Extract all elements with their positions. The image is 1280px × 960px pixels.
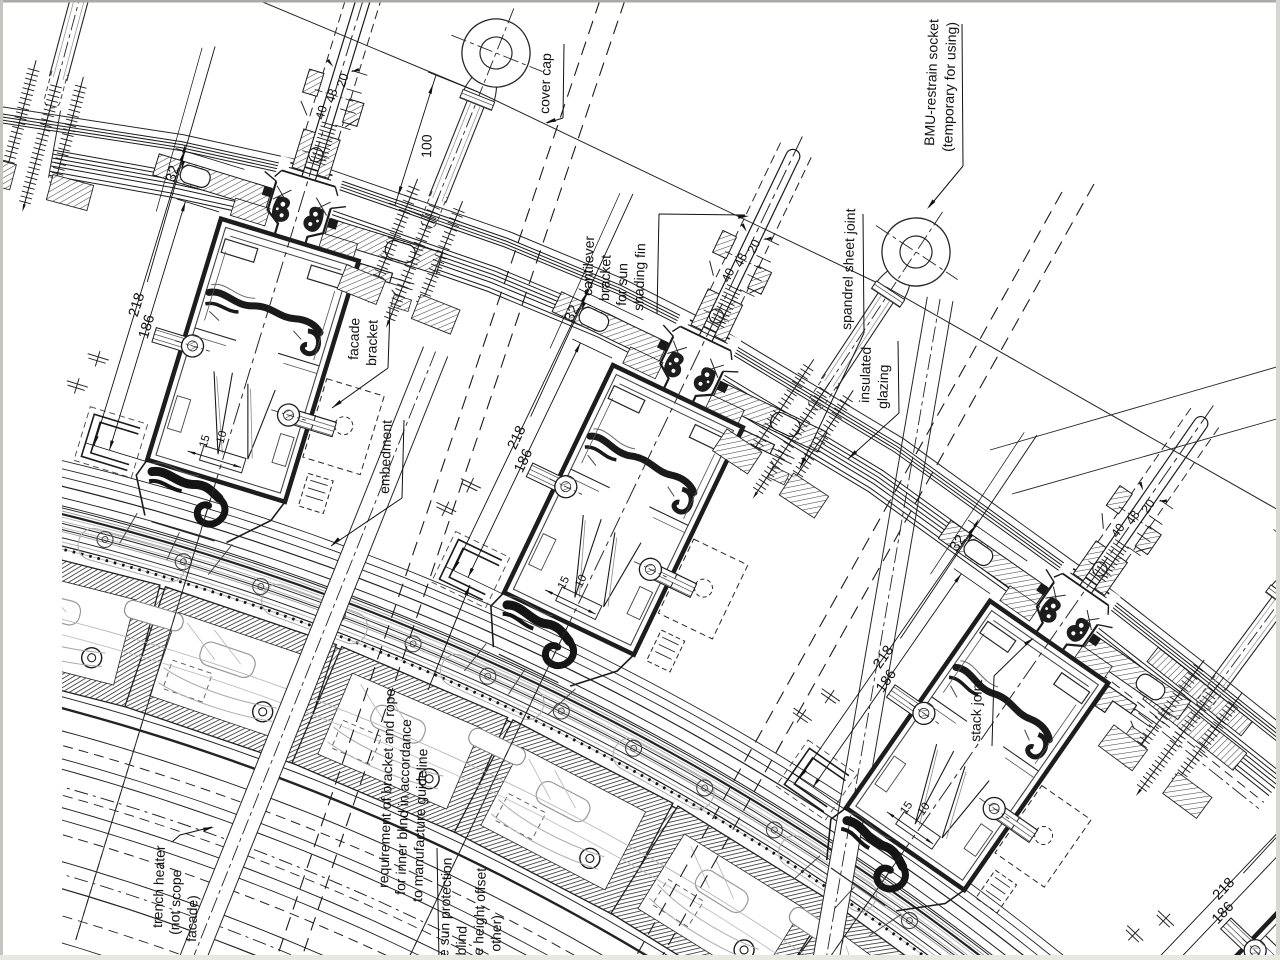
- svg-text:n the height offset: n the height offset: [469, 867, 489, 960]
- svg-text:bracket: bracket: [363, 320, 381, 367]
- svg-text:100: 100: [418, 134, 435, 158]
- svg-text:stack joint: stack joint: [967, 679, 985, 742]
- svg-text:er blind: er blind: [452, 926, 470, 960]
- svg-text:bracket: bracket: [596, 255, 614, 302]
- svg-text:trench heater: trench heater: [149, 845, 168, 928]
- svg-text:each other): each other): [486, 915, 504, 960]
- svg-text:facade): facade): [183, 895, 201, 942]
- svg-text:insulated: insulated: [856, 347, 874, 404]
- svg-text:cantilever: cantilever: [579, 235, 597, 296]
- svg-text:(not scope: (not scope: [166, 869, 184, 935]
- svg-text:glazing: glazing: [874, 364, 892, 409]
- svg-text:shading fin: shading fin: [630, 243, 648, 311]
- svg-text:embedment: embedment: [376, 420, 395, 495]
- svg-text:cover cap: cover cap: [536, 53, 554, 114]
- svg-text:facade: facade: [345, 317, 362, 360]
- svg-text:for sun: for sun: [613, 263, 630, 306]
